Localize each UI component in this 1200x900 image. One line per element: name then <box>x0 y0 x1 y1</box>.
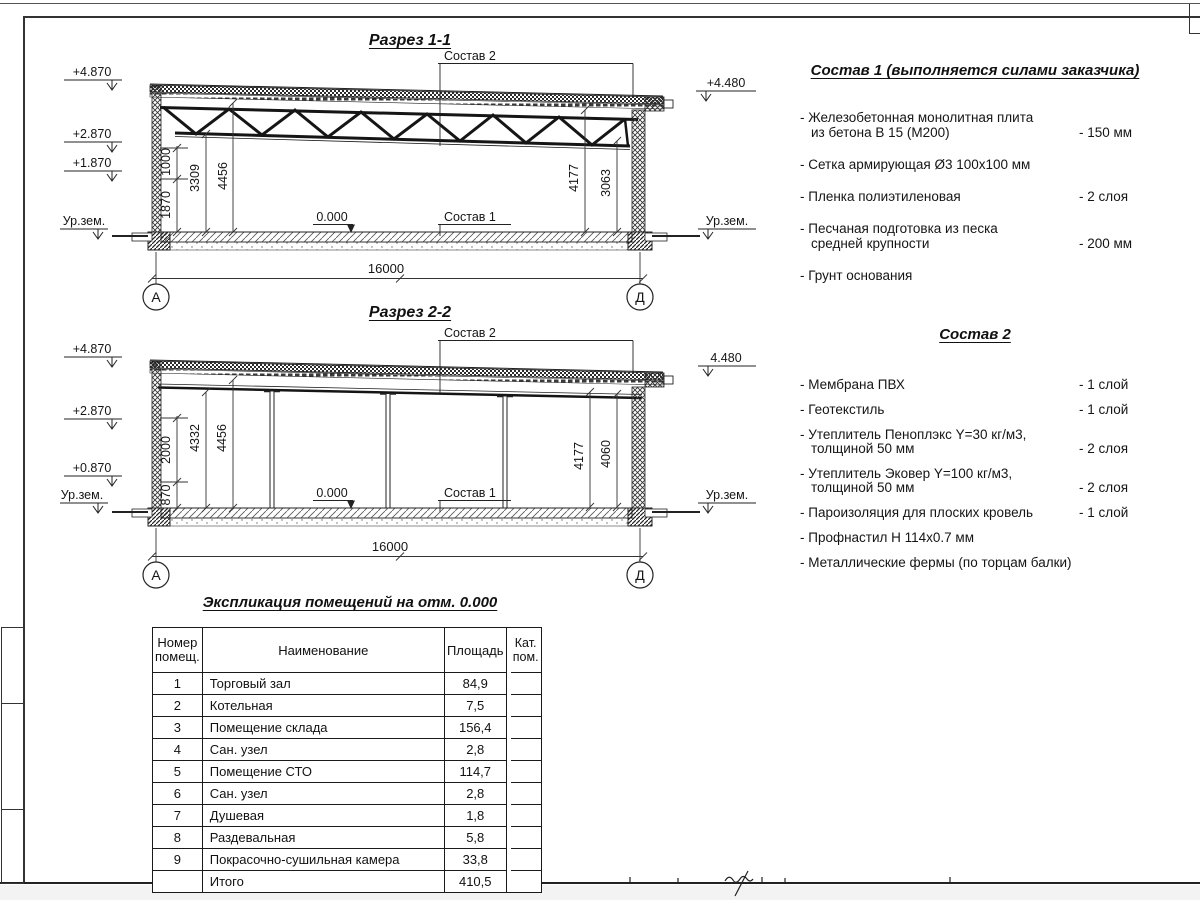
room-area: 2,8 <box>445 783 507 805</box>
sec2-dim-4177: 4177 <box>572 442 586 470</box>
room-name: Покрасочно-сушильная камера <box>203 849 445 871</box>
room-area: 84,9 <box>445 673 507 695</box>
room-category <box>511 761 542 783</box>
room-number: 1 <box>152 673 203 695</box>
room-number: 2 <box>152 695 203 717</box>
sec2-dim-4456: 4456 <box>215 424 229 452</box>
list-item: - Утеплитель Пеноплэкс Y=30 кг/м3, толщи… <box>800 428 1148 456</box>
material-value: - 1 слой <box>1079 403 1148 417</box>
sostav1-list: - Железобетонная монолитная плита из бет… <box>800 110 1148 300</box>
list-item: - Металлические фермы (по торцам балки) <box>800 556 1148 570</box>
sec2-roof <box>150 360 673 398</box>
room-category <box>511 717 542 739</box>
table-row: 1Торговый зал84,9 <box>152 673 542 695</box>
room-number: 6 <box>152 783 203 805</box>
room-name: Раздевальная <box>203 827 445 849</box>
sec1-floor <box>112 232 700 250</box>
material-text: - Металлические фермы (по торцам балки) <box>800 556 1079 570</box>
sec2-axis-a: А <box>151 567 161 583</box>
sec2-dim-4332: 4332 <box>188 424 202 452</box>
room-name: Душевая <box>203 805 445 827</box>
room-category <box>511 739 542 761</box>
material-text: - Мембрана ПВХ <box>800 378 1079 392</box>
material-text: - Сетка армирующая Ø3 100х100 мм <box>800 157 1079 172</box>
table-header-row: Номер помещ. Наименование Площадь Кат. п… <box>152 627 542 673</box>
sostav2-title: Состав 2 <box>800 326 1150 343</box>
sec1-dim-3063: 3063 <box>599 169 613 197</box>
list-item: - Пароизоляция для плоских кровель- 1 сл… <box>800 506 1148 520</box>
col-header-category: Кат. пом. <box>511 627 542 673</box>
room-number: 7 <box>152 805 203 827</box>
sec2-axis-d: Д <box>635 567 645 583</box>
room-category <box>511 695 542 717</box>
room-area: 156,4 <box>445 717 507 739</box>
room-area: 33,8 <box>445 849 507 871</box>
frame-top-line <box>23 16 1200 18</box>
table-row: 2Котельная7,5 <box>152 695 542 717</box>
table-row: 5Помещение СТО114,7 <box>152 761 542 783</box>
sec2-span-label: 16000 <box>372 539 408 554</box>
material-value: - 2 слоя <box>1079 442 1148 456</box>
table-row: 9Покрасочно-сушильная камера33,8 <box>152 849 542 871</box>
room-category <box>511 805 542 827</box>
room-area: 2,8 <box>445 739 507 761</box>
sec2-elev-2870: +2.870 <box>73 404 112 418</box>
sec1-elev-2870: +2.870 <box>73 127 112 141</box>
sec2-elev-0870: +0.870 <box>73 461 112 475</box>
sec1-zero-label: 0.000 <box>316 210 347 224</box>
list-item: - Песчаная подготовка из песка средней к… <box>800 221 1148 251</box>
room-number: 4 <box>152 739 203 761</box>
sec2-axis-markers <box>143 562 653 588</box>
room-area: 114,7 <box>445 761 507 783</box>
material-value: - 2 слоя <box>1079 481 1148 495</box>
material-text: - Пленка полиэтиленовая <box>800 189 1079 204</box>
room-name: Котельная <box>203 695 445 717</box>
room-number: 9 <box>152 849 203 871</box>
sec2-floor <box>112 508 700 526</box>
filing-box-divider-2 <box>2 809 23 810</box>
sheet-top-edge-line <box>0 3 1200 4</box>
table-row: 8Раздевальная5,8 <box>152 827 542 849</box>
table-row: 6Сан. узел2,8 <box>152 783 542 805</box>
room-name: Сан. узел <box>203 783 445 805</box>
room-name: Сан. узел <box>203 739 445 761</box>
room-number: 3 <box>152 717 203 739</box>
sec1-elev-1870: +1.870 <box>73 156 112 170</box>
material-text: - Утеплитель Пеноплэкс Y=30 кг/м3, толщи… <box>800 428 1079 456</box>
material-text: - Геотекстиль <box>800 403 1079 417</box>
signature-scribble <box>725 877 753 883</box>
material-text: - Утеплитель Эковер Y=100 кг/м3, толщино… <box>800 467 1079 495</box>
sec1-elev-ground-right: Ур.зем. <box>706 214 748 228</box>
sec1-dim-4456: 4456 <box>216 162 230 190</box>
margin-filing-boxes <box>1 627 24 884</box>
filing-box-divider-1 <box>2 703 23 704</box>
room-category <box>511 783 542 805</box>
room-area: 7,5 <box>445 695 507 717</box>
material-text: - Грунт основания <box>800 268 1079 283</box>
table-row: 4Сан. узел2,8 <box>152 739 542 761</box>
room-name: Помещение СТО <box>203 761 445 783</box>
sec1-dim-3309: 3309 <box>188 164 202 192</box>
table-total-row: Итого410,5 <box>152 871 542 893</box>
list-item: - Мембрана ПВХ- 1 слой <box>800 378 1148 392</box>
sec2-dim-2000: 2000 <box>159 436 173 464</box>
sec1-sostav2-label: Состав 2 <box>444 49 496 63</box>
section-1-1-drawing: +4.870 +2.870 +1.870 Ур.зем. +4.480 Ур.з… <box>40 28 770 316</box>
room-number: 8 <box>152 827 203 849</box>
sec1-span-label: 16000 <box>368 261 404 276</box>
sostav1-title: Состав 1 (выполняется силами заказчика) <box>800 62 1150 79</box>
material-text: - Песчаная подготовка из песка средней к… <box>800 221 1079 251</box>
table-row: 7Душевая1,8 <box>152 805 542 827</box>
bottom-line-artifacts <box>520 840 1200 900</box>
sec2-dim-870: 870 <box>159 485 173 506</box>
sec2-sostav1-label: Состав 1 <box>444 486 496 500</box>
section-2-2-drawing: +4.870 +2.870 +0.870 Ур.зем. 4.480 Ур.зе… <box>40 300 770 592</box>
sec1-elev-ground-left: Ур.зем. <box>63 214 105 228</box>
material-value: - 1 слой <box>1079 506 1148 520</box>
room-category <box>511 673 542 695</box>
sec1-dim-1870: 1870 <box>159 191 173 219</box>
total-label: Итого <box>203 871 445 893</box>
room-name: Торговый зал <box>203 673 445 695</box>
material-text: - Железобетонная монолитная плита из бет… <box>800 110 1079 140</box>
table-row: 3Помещение склада156,4 <box>152 717 542 739</box>
sec1-dim-4177: 4177 <box>567 164 581 192</box>
room-number: 5 <box>152 761 203 783</box>
room-table-title: Экспликация помещений на отм. 0.000 <box>150 594 550 611</box>
sec2-sostav2-label: Состав 2 <box>444 326 496 340</box>
list-item: - Пленка полиэтиленовая- 2 слоя <box>800 189 1148 204</box>
material-value: - 2 слоя <box>1079 189 1148 204</box>
list-item: - Геотекстиль- 1 слой <box>800 403 1148 417</box>
material-text: - Профнастил Н 114х0.7 мм <box>800 531 1079 545</box>
material-value: - 200 мм <box>1079 236 1148 251</box>
list-item: - Профнастил Н 114х0.7 мм <box>800 531 1148 545</box>
list-item: - Сетка армирующая Ø3 100х100 мм <box>800 157 1148 172</box>
sec2-elev-4870: +4.870 <box>73 342 112 356</box>
frame-corner-tab-vline <box>1189 4 1190 33</box>
sec2-zero-label: 0.000 <box>316 486 347 500</box>
list-item: - Железобетонная монолитная плита из бет… <box>800 110 1148 140</box>
drawing-sheet: Разрез 1-1 Разрез 2-2 Состав 1 (выполняе… <box>0 0 1200 900</box>
frame-corner-tab-hline <box>1189 33 1200 34</box>
room-area: 5,8 <box>445 827 507 849</box>
sostav2-list: - Мембрана ПВХ- 1 слой - Геотекстиль- 1 … <box>800 378 1148 581</box>
col-header-number: Номер помещ. <box>152 627 203 673</box>
sec1-roof <box>150 84 673 111</box>
sec2-elev-4480: 4.480 <box>710 351 741 365</box>
room-area: 1,8 <box>445 805 507 827</box>
list-item: - Утеплитель Эковер Y=100 кг/м3, толщино… <box>800 467 1148 495</box>
material-text: - Пароизоляция для плоских кровель <box>800 506 1079 520</box>
sec1-elev-4870: +4.870 <box>73 65 112 79</box>
room-name: Помещение склада <box>203 717 445 739</box>
room-schedule-table: Номер помещ. Наименование Площадь Кат. п… <box>152 627 542 893</box>
room-number <box>152 871 203 893</box>
col-header-name: Наименование <box>203 627 445 673</box>
sec1-truss <box>160 107 638 150</box>
sec2-dim-4060: 4060 <box>599 440 613 468</box>
col-header-area: Площадь <box>445 627 507 673</box>
sec1-elev-4480: +4.480 <box>707 76 746 90</box>
sec1-dim-1000: 1000 <box>159 148 173 176</box>
total-area: 410,5 <box>445 871 507 893</box>
sec2-elev-ground-right: Ур.зем. <box>706 488 748 502</box>
material-value: - 150 мм <box>1079 125 1148 140</box>
sec2-elev-ground-left: Ур.зем. <box>61 488 103 502</box>
sec1-sostav1-label: Состав 1 <box>444 210 496 224</box>
list-item: - Грунт основания <box>800 268 1148 283</box>
material-value: - 1 слой <box>1079 378 1148 392</box>
